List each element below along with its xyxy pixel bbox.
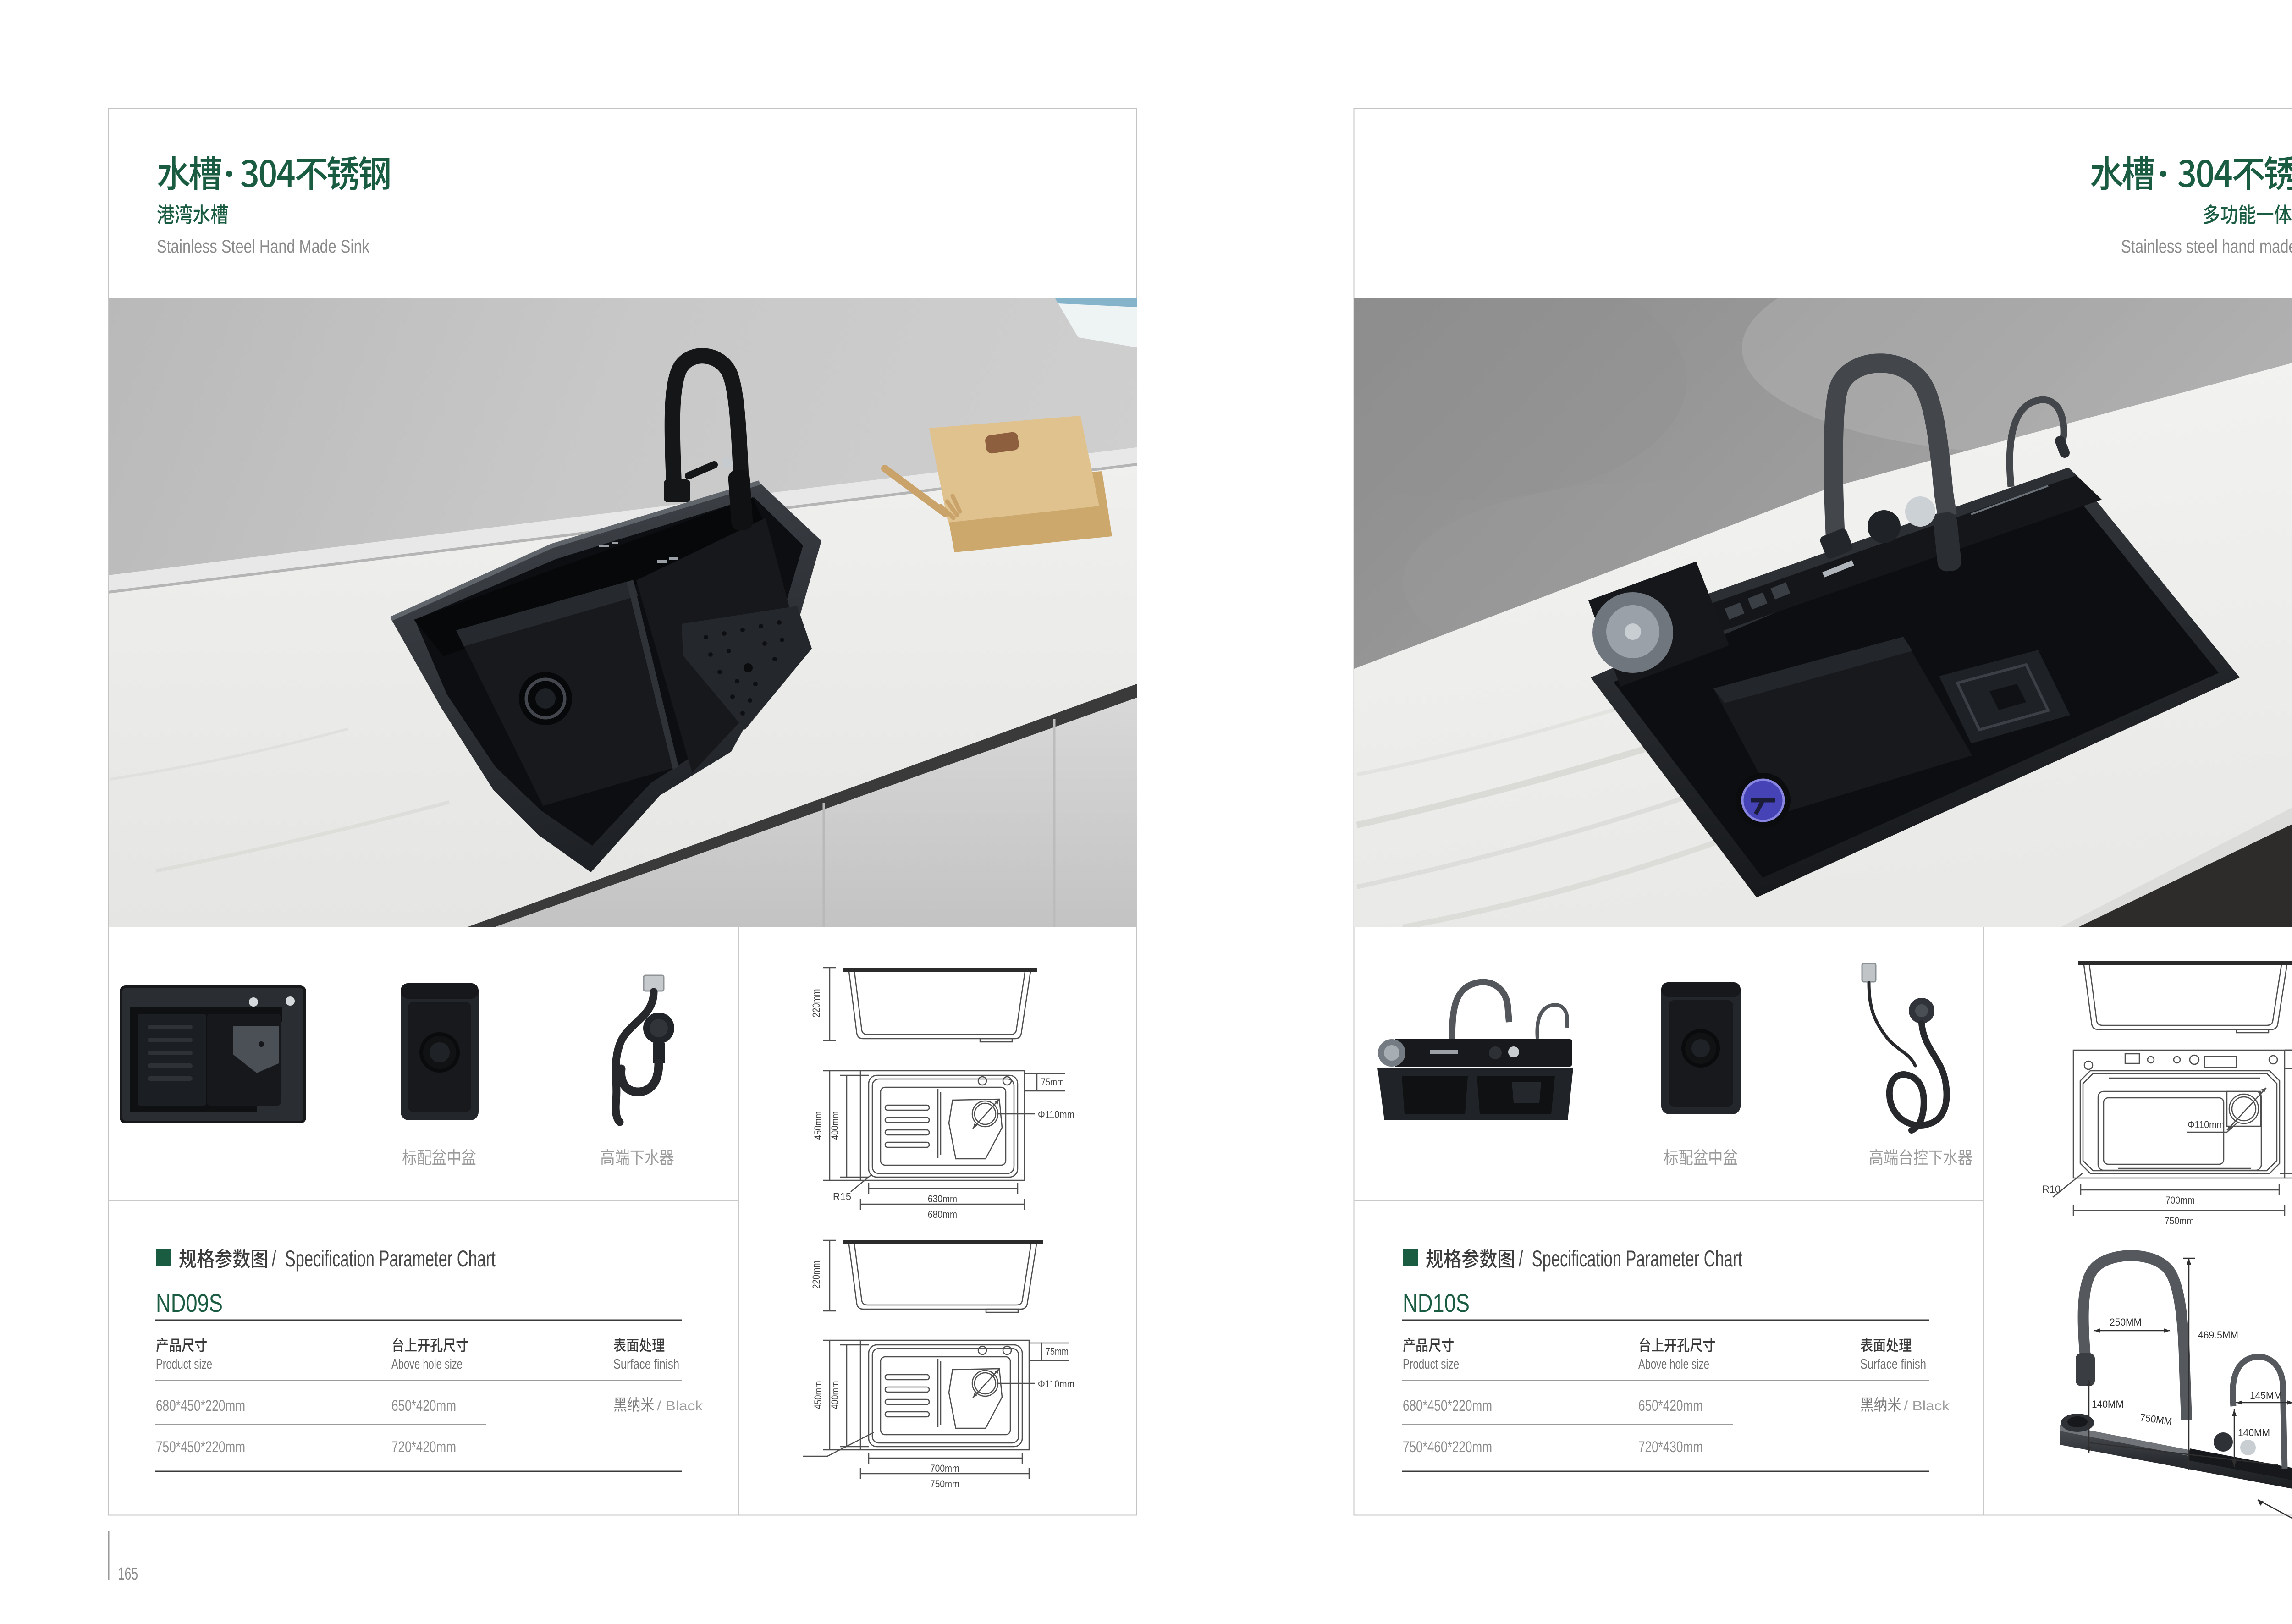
svg-text:220mm: 220mm [810,989,822,1018]
svg-text:720*420mm: 720*420mm [391,1438,456,1456]
svg-text:250MM: 250MM [2110,1316,2142,1328]
svg-text:140MM: 140MM [2092,1398,2124,1410]
svg-text:75mm: 75mm [1041,1076,1064,1088]
svg-text:Stainless steel hand made sink: Stainless steel hand made sink [2121,237,2292,257]
svg-text:680*450*220mm: 680*450*220mm [1403,1397,1492,1415]
svg-text:750mm: 750mm [930,1478,959,1490]
svg-text:ND10S: ND10S [1403,1288,1470,1317]
svg-text:450mm: 450mm [812,1381,824,1409]
svg-text:R15: R15 [833,1191,851,1202]
svg-text:Above hole size: Above hole size [391,1356,463,1372]
svg-text:Φ110mm: Φ110mm [1038,1109,1074,1120]
svg-text:Product size: Product size [1403,1356,1459,1372]
svg-text:400mm: 400mm [829,1381,841,1409]
svg-text:750*460*220mm: 750*460*220mm [1403,1438,1492,1456]
svg-text:/ Specification Parameter Cha: / Specification Parameter Chart [272,1246,496,1272]
svg-text:/ Specification Parameter Cha: / Specification Parameter Chart [1519,1246,1742,1272]
svg-text:750mm: 750mm [2165,1215,2194,1227]
svg-text:700mm: 700mm [930,1463,959,1474]
svg-text:Above hole size: Above hole size [1638,1356,1709,1372]
svg-text:Φ110mm: Φ110mm [2187,1119,2224,1130]
svg-text:Φ110mm: Φ110mm [1038,1378,1074,1390]
svg-text:Surface finish: Surface finish [613,1356,679,1372]
svg-text:140MM: 140MM [2238,1427,2270,1438]
svg-text:630mm: 630mm [928,1193,957,1205]
svg-text:650*420mm: 650*420mm [391,1397,456,1415]
svg-text:650*420mm: 650*420mm [1638,1397,1703,1415]
svg-text:165: 165 [118,1564,138,1584]
svg-text:ND09S: ND09S [156,1288,223,1317]
svg-text:680*450*220mm: 680*450*220mm [156,1397,245,1415]
svg-text:680mm: 680mm [928,1209,957,1220]
svg-text:/ Black: / Black [657,1398,703,1414]
svg-text:75mm: 75mm [1046,1346,1069,1357]
svg-text:400mm: 400mm [829,1112,841,1140]
svg-text:/ Black: / Black [1904,1398,1950,1414]
svg-text:700mm: 700mm [2165,1195,2195,1206]
svg-text:Stainless Steel Hand Made Sink: Stainless Steel Hand Made Sink [157,237,370,257]
svg-text:Product size: Product size [156,1356,212,1372]
svg-text:450mm: 450mm [812,1112,824,1140]
svg-text:469.5MM: 469.5MM [2198,1329,2238,1341]
svg-text:Surface finish: Surface finish [1860,1356,1926,1372]
svg-text:220mm: 220mm [810,1261,822,1289]
svg-text:720*430mm: 720*430mm [1638,1438,1703,1456]
svg-text:145MM: 145MM [2250,1390,2282,1401]
svg-text:750*450*220mm: 750*450*220mm [156,1438,245,1456]
